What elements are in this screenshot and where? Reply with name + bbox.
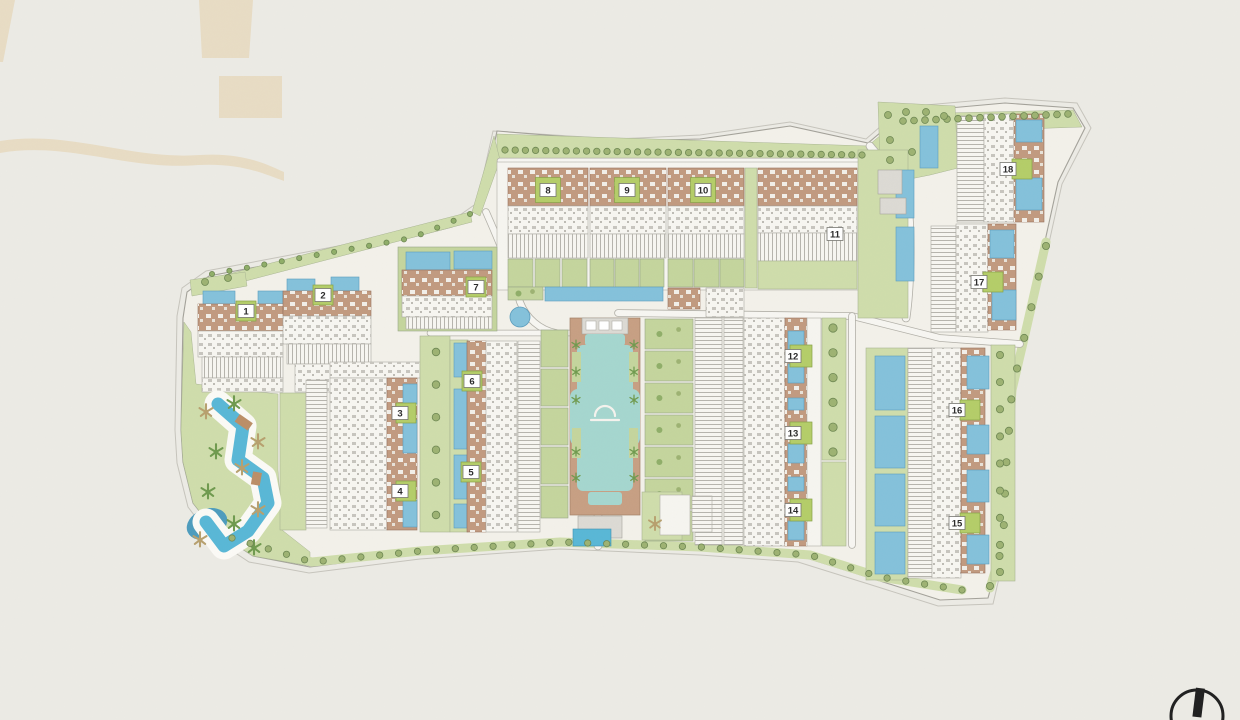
south-tree: [566, 539, 572, 545]
building-badge-8: 8: [536, 178, 561, 203]
block-part-pad: [878, 170, 902, 194]
block-part-plot: [508, 287, 543, 300]
north-tree: [757, 150, 763, 156]
south-tree: [848, 565, 854, 571]
shrub: [676, 423, 681, 428]
north-tree: [696, 150, 702, 156]
northeast-tree: [911, 117, 918, 124]
pavilion-unit: [599, 321, 609, 330]
badge-number: 8: [545, 185, 550, 196]
north-tree: [808, 151, 814, 157]
watermark-wave: [0, 139, 284, 181]
mid-strip-tree: [432, 446, 440, 454]
block-part-pool: [967, 470, 989, 502]
northeast-tree: [900, 118, 907, 125]
east-tree: [1013, 365, 1020, 372]
park-tree: [903, 109, 910, 116]
block-part-plot: [590, 259, 614, 287]
block-2-roof-texture: [283, 316, 371, 344]
shrub: [656, 427, 662, 433]
block-17-pergola-texture: [931, 226, 956, 332]
south-tree: [320, 558, 326, 564]
south-tree: [395, 550, 401, 556]
block-part-plot: [645, 383, 693, 413]
east-tree: [1008, 396, 1015, 403]
east-tree: [1005, 427, 1012, 434]
north-tree: [675, 149, 681, 155]
mid-strip-tree: [432, 479, 440, 487]
north-tree: [736, 150, 742, 156]
north-tree: [838, 152, 844, 158]
shrub: [676, 391, 681, 396]
east-tree: [986, 582, 993, 589]
east-tree: [1000, 522, 1007, 529]
badge-number: 4: [397, 486, 403, 497]
block-part-lawn: [822, 318, 846, 460]
badge-number: 18: [1003, 164, 1014, 175]
northwest-shrub: [435, 225, 440, 230]
northwest-shrub: [332, 249, 337, 254]
east-strip-tree: [996, 568, 1003, 575]
south-tree: [755, 548, 761, 554]
northwest-shrub: [418, 232, 423, 237]
south-tree: [358, 554, 364, 560]
east-strip-tree: [996, 460, 1003, 467]
block-18-pergola-texture: [957, 116, 984, 222]
north-tree: [614, 148, 620, 154]
block-7-roof-texture: [402, 296, 492, 317]
mid-strip-tree: [432, 511, 440, 519]
south-tree: [698, 544, 704, 550]
park-tree: [887, 157, 894, 164]
north-compass: [1171, 688, 1223, 720]
block-part-pool: [967, 425, 989, 454]
building-badge-9: 9: [615, 178, 640, 203]
south-tree: [940, 584, 946, 590]
block-7-pergola-texture: [406, 317, 492, 329]
northwest-shrub: [244, 265, 249, 270]
block-part-plot: [541, 408, 568, 445]
north-tree: [726, 150, 732, 156]
block-part-pool: [454, 504, 467, 528]
east-strip-tree: [996, 433, 1003, 440]
south-tree: [301, 557, 307, 563]
north-tree: [859, 152, 865, 158]
pavilion-unit: [612, 321, 622, 330]
park-tree: [887, 137, 894, 144]
east-strip-tree: [996, 379, 1003, 386]
block-part-plot: [645, 351, 693, 381]
south-tree: [921, 581, 927, 587]
northeast-tree: [977, 114, 984, 121]
south-tree: [339, 556, 345, 562]
mid-strip-tree: [432, 413, 440, 421]
stripeH-texture: [692, 496, 712, 532]
north-tree: [655, 149, 661, 155]
block-part-lawn: [280, 393, 306, 530]
park-tree: [885, 112, 892, 119]
garden-strip-tree: [829, 448, 837, 456]
south-tree: [604, 541, 610, 547]
shrub: [656, 331, 662, 337]
north-tree: [604, 148, 610, 154]
south-tree: [452, 546, 458, 552]
northwest-shrub: [401, 237, 406, 242]
north-tree: [624, 149, 630, 155]
badge-number: 15: [952, 518, 963, 529]
block-9-roof-texture: [590, 206, 666, 234]
north-tree: [583, 148, 589, 154]
block-part-plot: [541, 447, 568, 484]
south-tree: [959, 587, 965, 593]
northeast-tree: [1054, 111, 1061, 118]
northeast-tree: [955, 115, 962, 122]
block-part-pool: [258, 291, 283, 305]
badge-number: 7: [473, 282, 478, 293]
building-badge-10: 10: [691, 178, 716, 203]
south-tree: [641, 542, 647, 548]
park-tree: [225, 275, 232, 282]
north-tree: [522, 147, 528, 153]
northwest-shrub: [349, 246, 354, 251]
east-strip-tree: [996, 514, 1003, 521]
block-10-roof-texture: [668, 206, 744, 234]
south-tree: [509, 542, 515, 548]
south-tree: [528, 541, 534, 547]
northeast-tree: [1010, 113, 1017, 120]
block-part-pool: [788, 477, 804, 491]
block-part-pool: [403, 384, 417, 404]
block-part-pool: [990, 230, 1014, 258]
northwest-shrub: [227, 268, 232, 273]
badge-number: 1: [243, 306, 249, 317]
block-part-plot: [645, 415, 693, 445]
roof-texture: [330, 362, 420, 378]
block-part-pool: [203, 291, 235, 305]
south-tree: [414, 548, 420, 554]
garden-strip-tree: [829, 398, 837, 406]
north-tree: [818, 151, 824, 157]
north-tree: [777, 151, 783, 157]
watermark-stroke-diagonal: [0, 0, 15, 62]
north-tree: [594, 148, 600, 154]
block-9-pergola-texture: [590, 234, 666, 258]
north-tree: [532, 147, 538, 153]
north-tree: [787, 151, 793, 157]
south-tree: [866, 570, 872, 576]
shrub: [676, 327, 681, 332]
block-part-lawn: [822, 462, 846, 546]
courtyard-pool-top-lobe: [585, 334, 625, 346]
block-5-6-pergola-texture: [518, 341, 540, 532]
northwest-shrub: [314, 252, 319, 257]
block-part-pool: [967, 535, 989, 564]
park-tree: [923, 109, 930, 116]
badge-number: 12: [788, 351, 799, 362]
badge-number: 11: [830, 229, 841, 240]
south-tree: [433, 547, 439, 553]
block-part-pool: [875, 532, 905, 574]
block-1-pergola-texture: [202, 357, 283, 378]
east-tree: [1042, 242, 1049, 249]
south-tree: [884, 575, 890, 581]
garden-strip-tree: [829, 324, 837, 332]
block-part-plot: [640, 259, 664, 287]
east-strip-tree: [996, 541, 1003, 548]
north-tree: [767, 151, 773, 157]
block-part-pool: [967, 356, 989, 389]
shrub: [656, 459, 662, 465]
south-tree: [229, 535, 235, 541]
east-strip-tree: [996, 351, 1003, 358]
block-part-pool: [875, 356, 905, 410]
block-12-14-roof-texture: [744, 318, 785, 546]
block-part-plot: [668, 259, 693, 287]
north-tree: [716, 150, 722, 156]
block-part-lawn: [758, 261, 857, 289]
parking-strip-west-texture: [306, 380, 327, 528]
east-strip-tree: [996, 406, 1003, 413]
south-tree: [736, 547, 742, 553]
south-tree: [471, 544, 477, 550]
mid-strip-tree: [432, 381, 440, 389]
watermark-square: [219, 76, 282, 118]
building-badge-6: 6: [462, 371, 482, 391]
south-tree: [265, 546, 271, 552]
block-15-16-roof-texture: [932, 348, 961, 578]
block-2-pergola-texture: [287, 344, 371, 364]
northwest-shrub: [209, 271, 214, 276]
block-part-pool: [403, 500, 417, 527]
block-part-pool: [875, 416, 905, 468]
north-tree: [573, 148, 579, 154]
badge-number: 13: [788, 428, 799, 439]
south-tree: [774, 549, 780, 555]
northeast-tree: [933, 116, 940, 123]
block-10-pergola-texture: [668, 234, 744, 258]
block-part-plot: [694, 259, 719, 287]
block-part-plot: [562, 259, 587, 287]
block-part-pool: [920, 126, 938, 168]
south-tree: [247, 540, 253, 546]
block-part-pool: [1016, 120, 1042, 142]
north-tree: [828, 151, 834, 157]
building-badge-1: 1: [236, 301, 256, 321]
north-tree: [798, 151, 804, 157]
garden-strip-tree: [829, 423, 837, 431]
block-part-pad: [880, 198, 906, 214]
north-tree: [849, 152, 855, 158]
south-tree: [283, 551, 289, 557]
north-tree: [543, 147, 549, 153]
block-part-plot: [615, 259, 639, 287]
east-tree: [1035, 273, 1042, 280]
building-badge-5: 5: [461, 462, 481, 482]
south-tree: [717, 545, 723, 551]
building-badge-7: 7: [466, 277, 486, 297]
masterplan-image: 123456789101112131415161718: [0, 0, 1240, 720]
block-part-plot: [541, 330, 568, 367]
mid-strip-tree: [432, 348, 440, 356]
block-part-plot: [720, 259, 744, 287]
block-11-texture: [758, 168, 857, 206]
northeast-tree: [988, 114, 995, 121]
entry-pavilion-roof-texture: [706, 288, 744, 317]
entry-pavilion-texture: [668, 288, 700, 309]
north-tree: [634, 149, 640, 155]
shrub: [676, 359, 681, 364]
badge-number: 6: [469, 376, 474, 387]
east-tree: [1003, 459, 1010, 466]
block-part-pool: [454, 251, 492, 269]
building-badge-11: 11: [827, 228, 843, 241]
park-tree: [941, 113, 948, 120]
northwest-shrub: [279, 259, 284, 264]
northwest-shrub: [384, 240, 389, 245]
east-tree: [1028, 304, 1035, 311]
watermark-logo: [0, 0, 284, 181]
south-tree: [679, 543, 685, 549]
shrub: [656, 395, 662, 401]
north-tree: [645, 149, 651, 155]
building-badge-2: 2: [313, 285, 333, 305]
park-tree: [909, 149, 916, 156]
northwest-shrub: [297, 256, 302, 261]
northeast-tree: [1065, 111, 1072, 118]
block-part-plot: [541, 369, 568, 406]
shrub: [676, 487, 681, 492]
block-8-pergola-texture: [508, 234, 588, 258]
south-tree: [622, 541, 628, 547]
site-plan-svg: 123456789101112131415161718: [0, 0, 1240, 720]
watermark-bar: [199, 0, 253, 58]
northeast-tree: [1032, 112, 1039, 119]
northeast-tree: [1021, 113, 1028, 120]
south-tree: [903, 578, 909, 584]
badge-number: 5: [468, 467, 474, 478]
block-part-pool: [896, 227, 914, 281]
block-part-plot: [541, 486, 568, 518]
badge-number: 3: [397, 408, 402, 419]
badge-number: 9: [624, 185, 629, 196]
east-tree: [996, 552, 1003, 559]
block-part-plot: [645, 319, 693, 349]
badge-number: 14: [788, 505, 799, 516]
block-part-pool: [454, 389, 467, 449]
northeast-tree: [922, 117, 929, 124]
badge-number: 10: [698, 185, 709, 196]
block-part-lawn: [420, 336, 450, 532]
north-tree: [512, 147, 518, 153]
south-tree: [660, 543, 666, 549]
shrub: [676, 455, 681, 460]
stripeH-texture: [724, 318, 743, 545]
block-part-pool: [406, 252, 450, 270]
northeast-tree: [966, 115, 973, 122]
block-5-6-roof-texture: [486, 341, 517, 532]
south-tree: [547, 540, 553, 546]
block-part-white: [660, 495, 690, 535]
badge-number: 2: [320, 290, 325, 301]
block-part-pool: [788, 521, 804, 540]
south-tree: [793, 551, 799, 557]
lap-pool: [545, 287, 663, 301]
block-5-6-texture: [467, 341, 486, 532]
block-part-pool: [1016, 178, 1042, 210]
south-tree: [377, 552, 383, 558]
block-part-pool: [788, 398, 804, 410]
east-tree: [1021, 334, 1028, 341]
northeast-tree: [1043, 112, 1050, 119]
pavilion-unit: [586, 321, 596, 330]
roof-texture: [202, 378, 283, 392]
block-part-plot: [508, 259, 533, 287]
south-tree: [829, 559, 835, 565]
north-tree: [502, 147, 508, 153]
round-pool: [510, 307, 530, 327]
northeast-tree: [999, 113, 1006, 120]
compass-north-bar: [1192, 688, 1204, 718]
garden-strip-tree: [829, 373, 837, 381]
south-tree: [490, 543, 496, 549]
shrub: [530, 289, 535, 294]
block-8-roof-texture: [508, 206, 588, 234]
block-part-plot: [535, 259, 560, 287]
northwest-shrub: [451, 218, 456, 223]
block-part-pool: [992, 290, 1016, 320]
north-tree: [685, 149, 691, 155]
garden-strip-tree: [829, 349, 837, 357]
northwest-shrub: [367, 243, 372, 248]
block-part-pool: [403, 420, 417, 453]
north-tree: [563, 148, 569, 154]
northwest-shrub: [467, 211, 472, 216]
northwest-shrub: [262, 262, 267, 267]
south-tree: [585, 540, 591, 546]
badge-number: 17: [974, 277, 985, 288]
block-part-lawn: [745, 168, 757, 288]
south-tree: [811, 553, 817, 559]
block-15-16-pergola-texture: [908, 348, 932, 578]
north-tree: [553, 148, 559, 154]
badge-number: 16: [952, 405, 963, 416]
north-tree: [747, 150, 753, 156]
block-1-roof-texture: [198, 331, 283, 357]
north-tree: [665, 149, 671, 155]
block-part-plot: [645, 447, 693, 477]
block-part-pool: [788, 444, 804, 463]
shrub: [656, 363, 662, 369]
block-part-pool: [331, 277, 359, 291]
shrub: [516, 291, 522, 297]
block-part-pool: [875, 474, 905, 526]
block-3-4-roof-texture: [330, 378, 387, 530]
north-tree: [706, 150, 712, 156]
east-strip-tree: [996, 487, 1003, 494]
courtyard-pool-south-lobe: [588, 492, 622, 505]
park-tree: [202, 279, 209, 286]
